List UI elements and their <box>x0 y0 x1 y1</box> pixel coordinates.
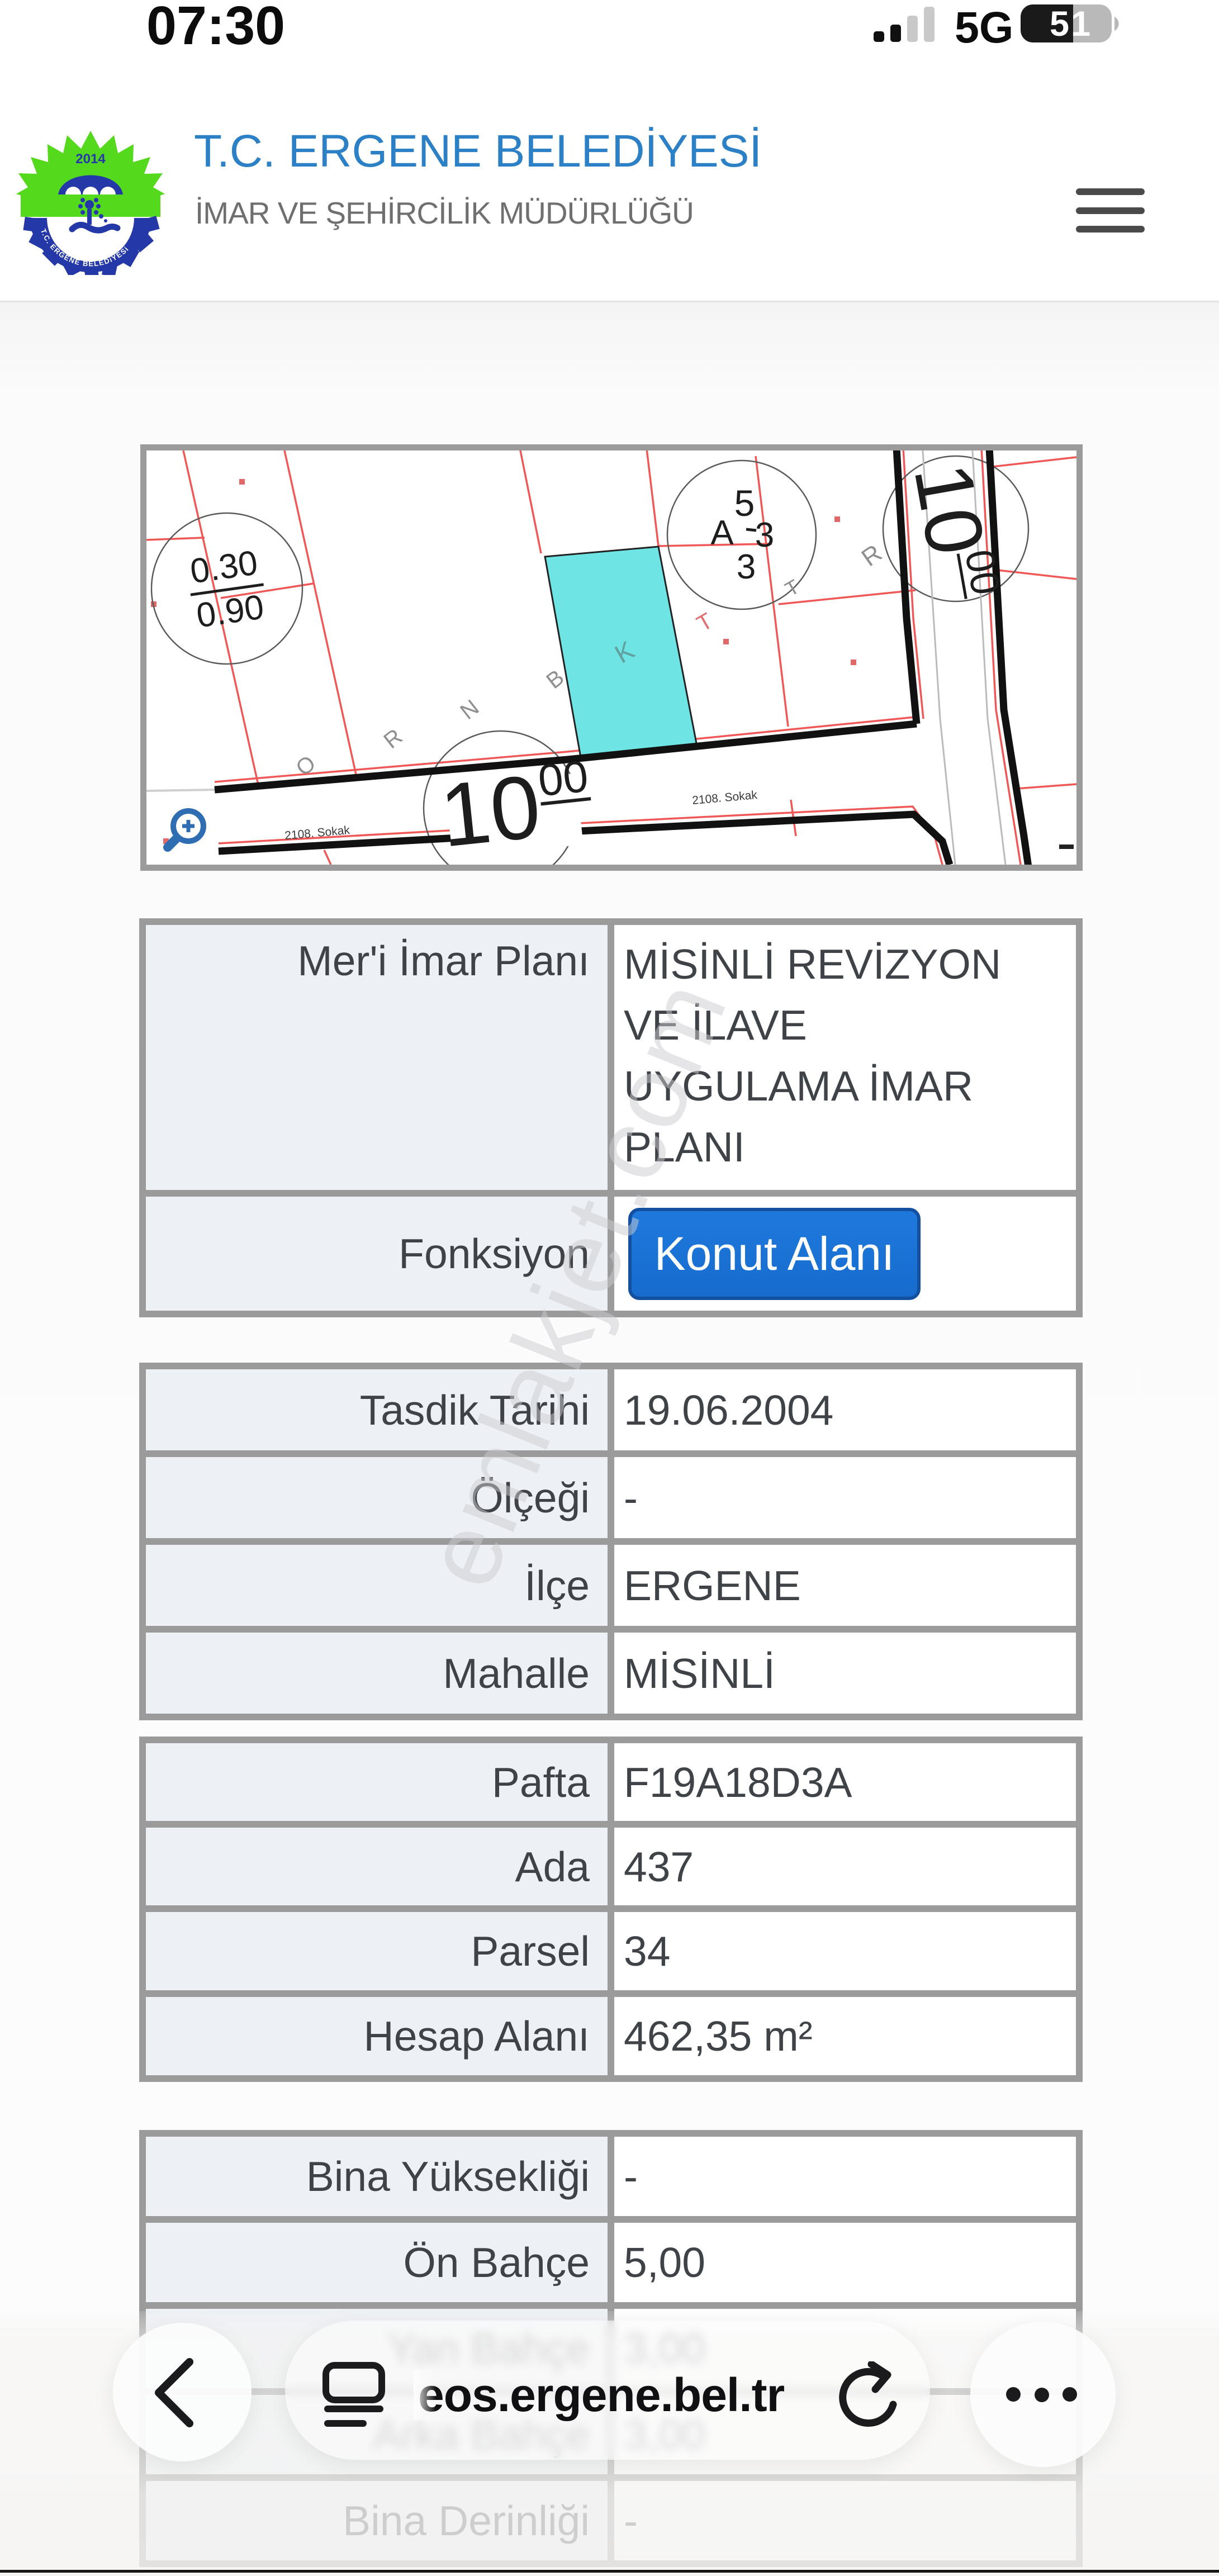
svg-text:N: N <box>456 695 483 724</box>
svg-text:1: 1 <box>1071 4 1090 44</box>
svg-text:2014: 2014 <box>75 151 106 167</box>
svg-text:R: R <box>379 724 407 753</box>
svg-text:T: T <box>693 608 717 636</box>
svg-text:T: T <box>781 575 804 601</box>
svg-text:5G: 5G <box>955 2 1013 52</box>
svg-text:3: 3 <box>755 516 774 554</box>
svg-text:O: O <box>291 751 320 781</box>
svg-text:3: 3 <box>737 548 756 586</box>
svg-text:00: 00 <box>536 751 591 806</box>
svg-text:10: 10 <box>897 457 1002 561</box>
svg-text:A: A <box>710 514 734 552</box>
svg-text:0.90: 0.90 <box>194 588 266 635</box>
svg-text:2108. Sokak: 2108. Sokak <box>284 824 350 842</box>
svg-text:R: R <box>857 539 887 572</box>
svg-text:5: 5 <box>734 482 755 524</box>
svg-text:0.30: 0.30 <box>188 543 260 591</box>
svg-text:10: 10 <box>435 756 545 865</box>
svg-text:5: 5 <box>1050 4 1069 44</box>
svg-text:2108. Sokak: 2108. Sokak <box>691 789 758 807</box>
